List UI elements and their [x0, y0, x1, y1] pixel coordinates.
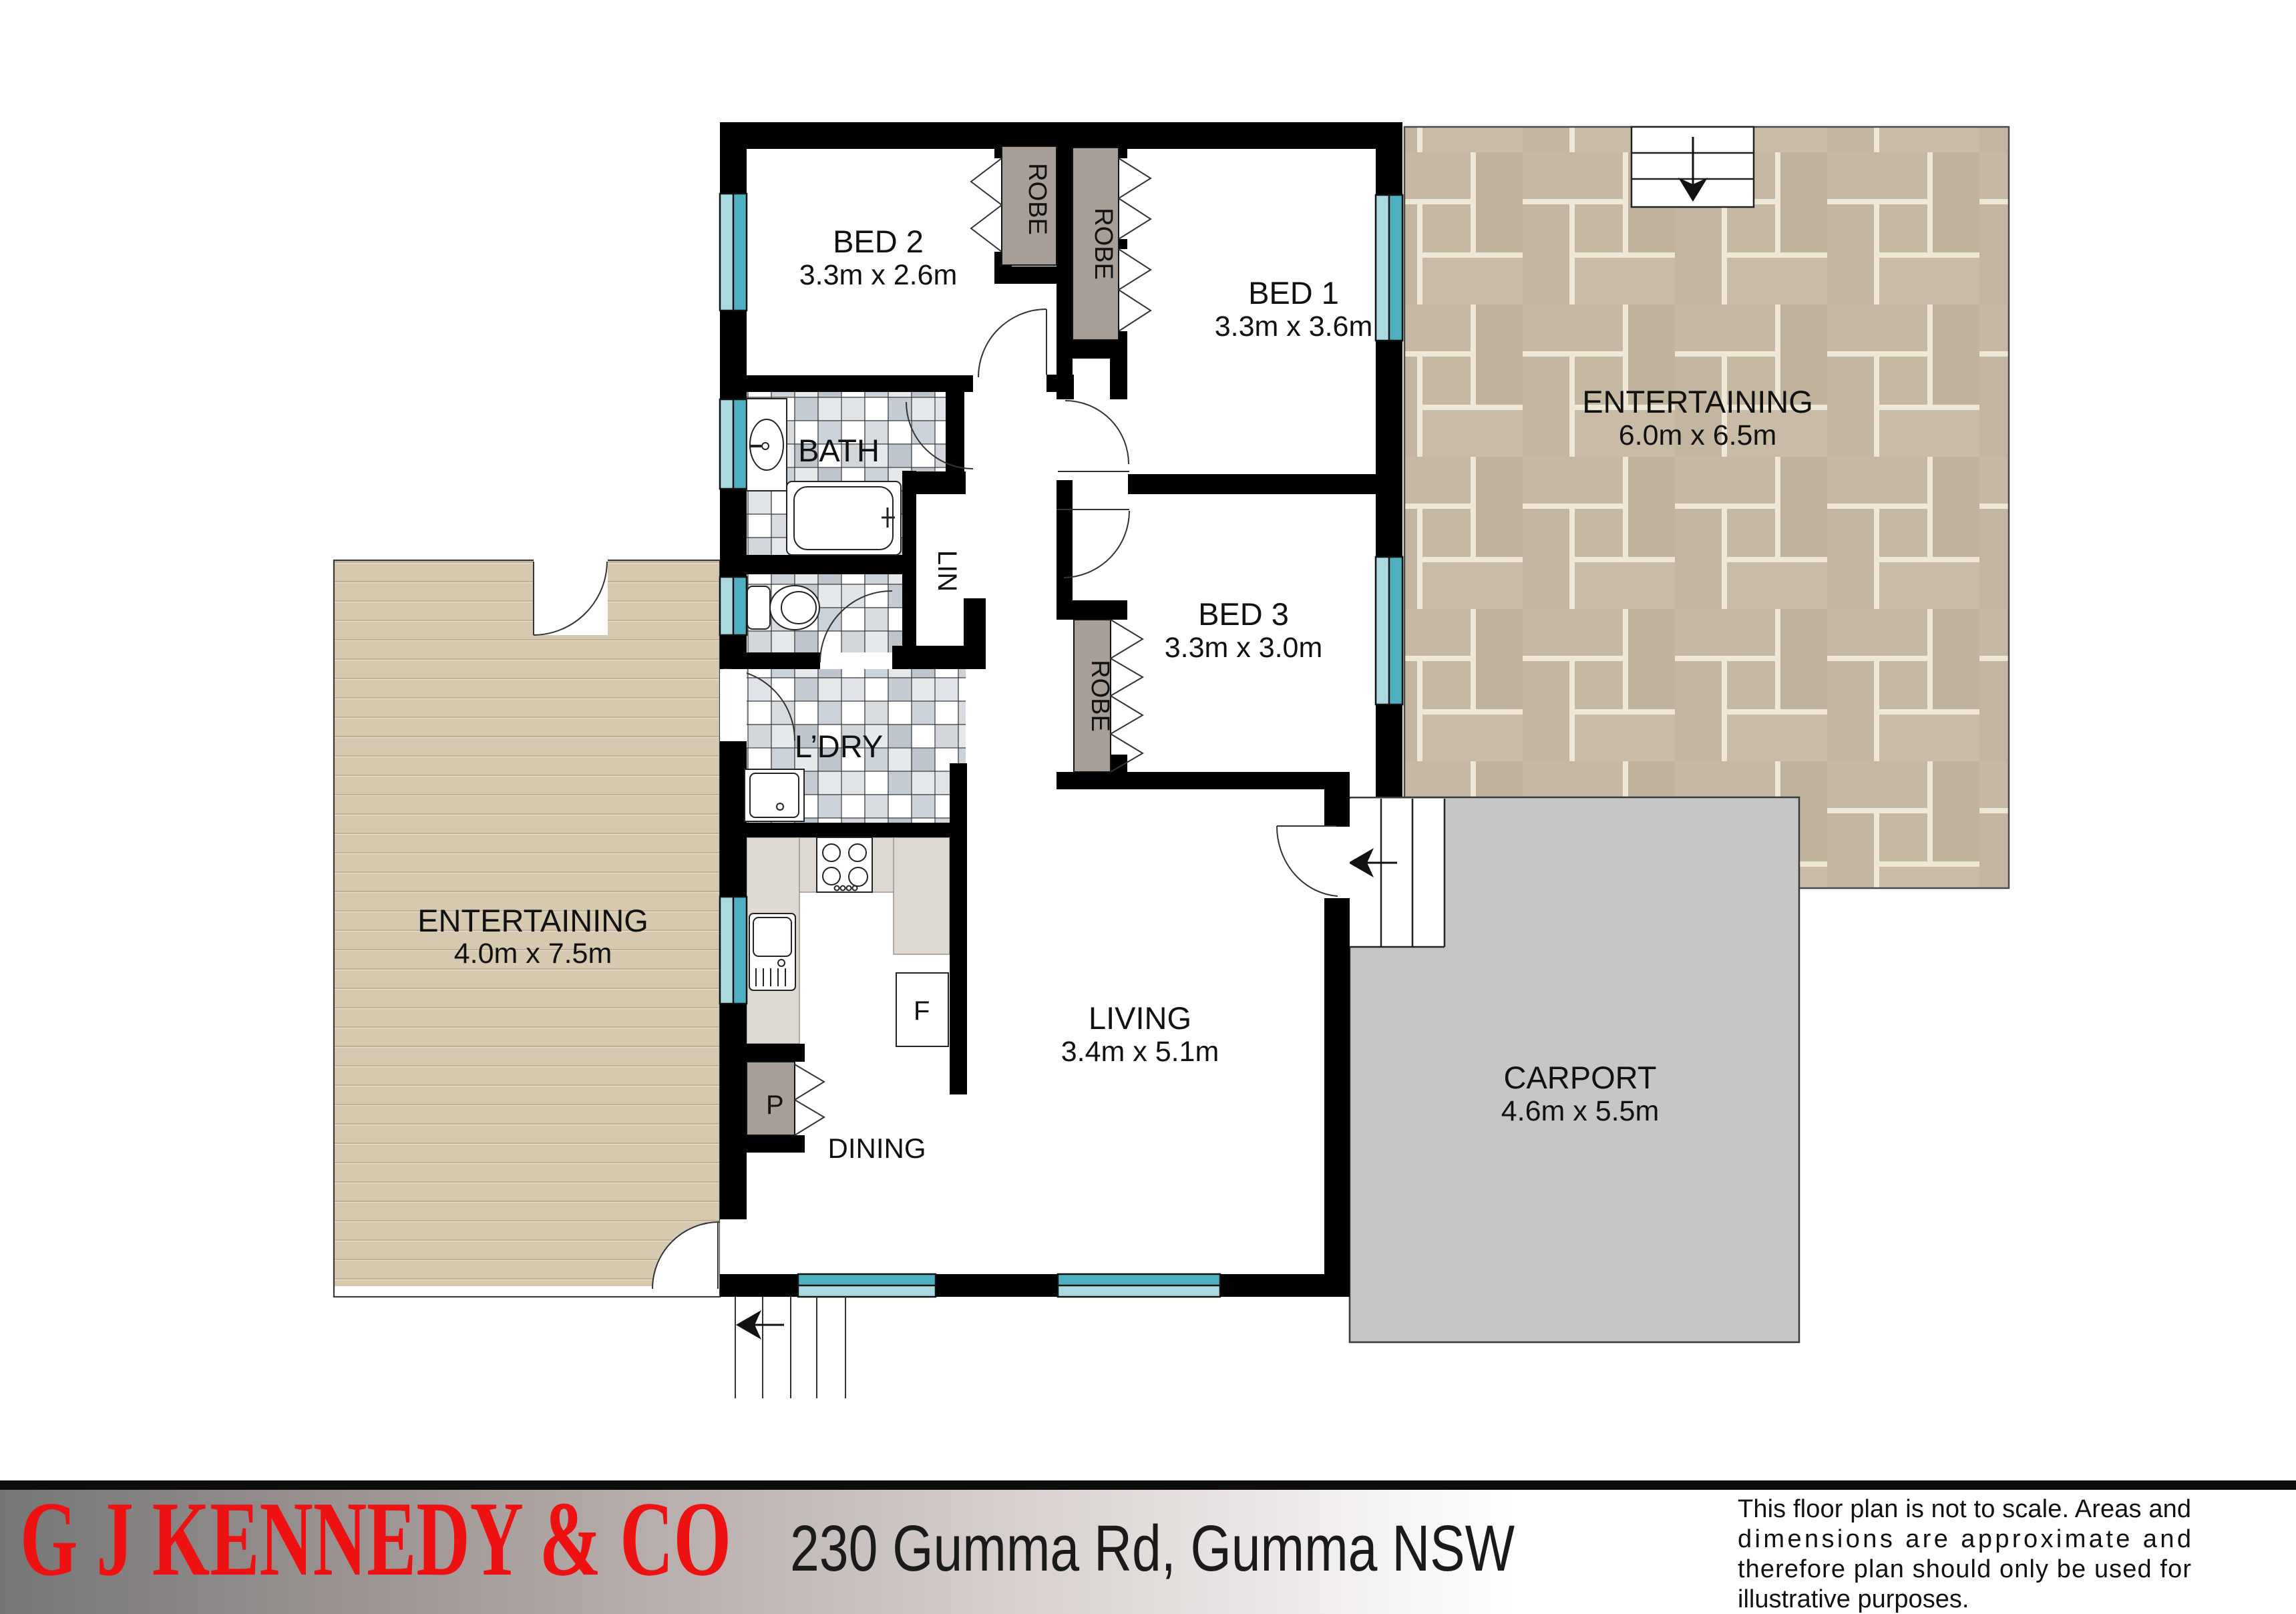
svg-text:L’DRY: L’DRY — [795, 729, 883, 764]
svg-text:BATH: BATH — [798, 433, 880, 468]
svg-text:BED 2: BED 2 — [833, 224, 924, 259]
svg-text:BED 1: BED 1 — [1248, 275, 1339, 311]
svg-text:3.3m x 2.6m: 3.3m x 2.6m — [799, 259, 958, 291]
svg-text:ROBE: ROBE — [1089, 208, 1117, 280]
svg-text:ROBE: ROBE — [1023, 163, 1051, 235]
svg-text:F: F — [914, 996, 930, 1026]
svg-text:LIN: LIN — [932, 550, 962, 592]
svg-text:3.3m x 3.6m: 3.3m x 3.6m — [1215, 311, 1373, 343]
svg-text:LIVING: LIVING — [1089, 1000, 1191, 1036]
svg-text:3.3m x 3.0m: 3.3m x 3.0m — [1165, 632, 1323, 664]
svg-text:ENTERTAINING: ENTERTAINING — [417, 903, 648, 938]
svg-text:This floor plan is not to scal: This floor plan is not to scale. Areas a… — [1738, 1495, 2191, 1523]
svg-text:ROBE: ROBE — [1086, 660, 1114, 732]
svg-text:4.0m x 7.5m: 4.0m x 7.5m — [454, 938, 612, 970]
svg-text:dimensions are approximate and: dimensions are approximate and — [1738, 1525, 2191, 1553]
svg-text:therefore plan should only be: therefore plan should only be used for — [1738, 1555, 2191, 1583]
svg-text:ENTERTAINING: ENTERTAINING — [1582, 384, 1813, 419]
svg-text:CARPORT: CARPORT — [1504, 1060, 1657, 1095]
svg-text:230 Gumma Rd, Gumma NSW: 230 Gumma Rd, Gumma NSW — [790, 1512, 1515, 1585]
svg-text:illustrative purposes.: illustrative purposes. — [1738, 1585, 1969, 1613]
svg-text:3.4m x 5.1m: 3.4m x 5.1m — [1061, 1036, 1219, 1068]
svg-text:6.0m x 6.5m: 6.0m x 6.5m — [1619, 419, 1777, 451]
svg-text:4.6m x 5.5m: 4.6m x 5.5m — [1501, 1095, 1660, 1127]
svg-text:DINING: DINING — [828, 1133, 926, 1164]
svg-text:G J KENNEDY & CO: G J KENNEDY & CO — [20, 1479, 731, 1598]
svg-text:P: P — [766, 1090, 784, 1120]
svg-text:BED 3: BED 3 — [1198, 596, 1289, 632]
